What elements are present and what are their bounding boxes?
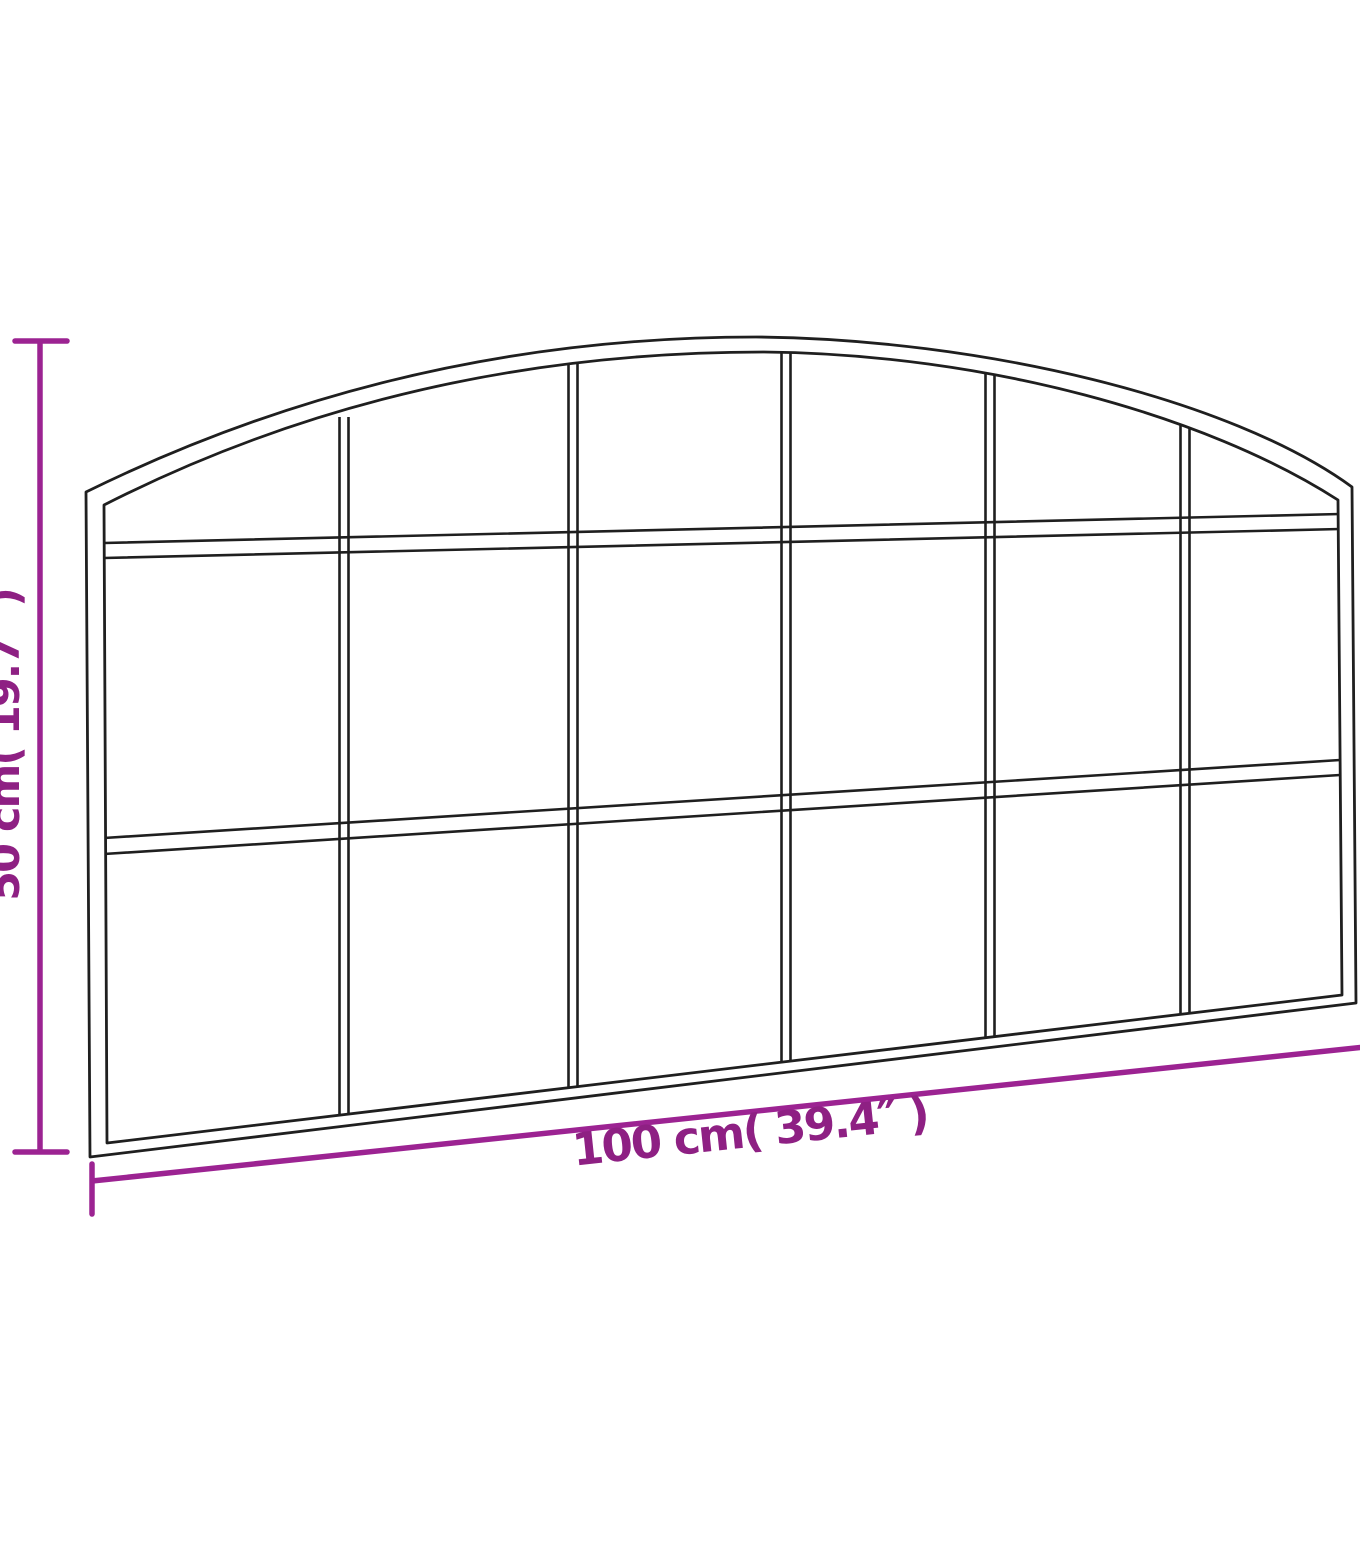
height-dimension-label: 50 cm( 19.7″ ) [0,545,33,945]
mirror-middle-rail [104,760,1340,854]
mirror-upper-rail [104,514,1340,558]
mirror-line-art [0,0,1360,1555]
mirror-frame [86,337,1356,1157]
mirror-mullions [340,350,1190,1115]
product-dimension-diagram: 50 cm( 19.7″ ) 100 cm( 39.4″ ) [0,0,1360,1555]
